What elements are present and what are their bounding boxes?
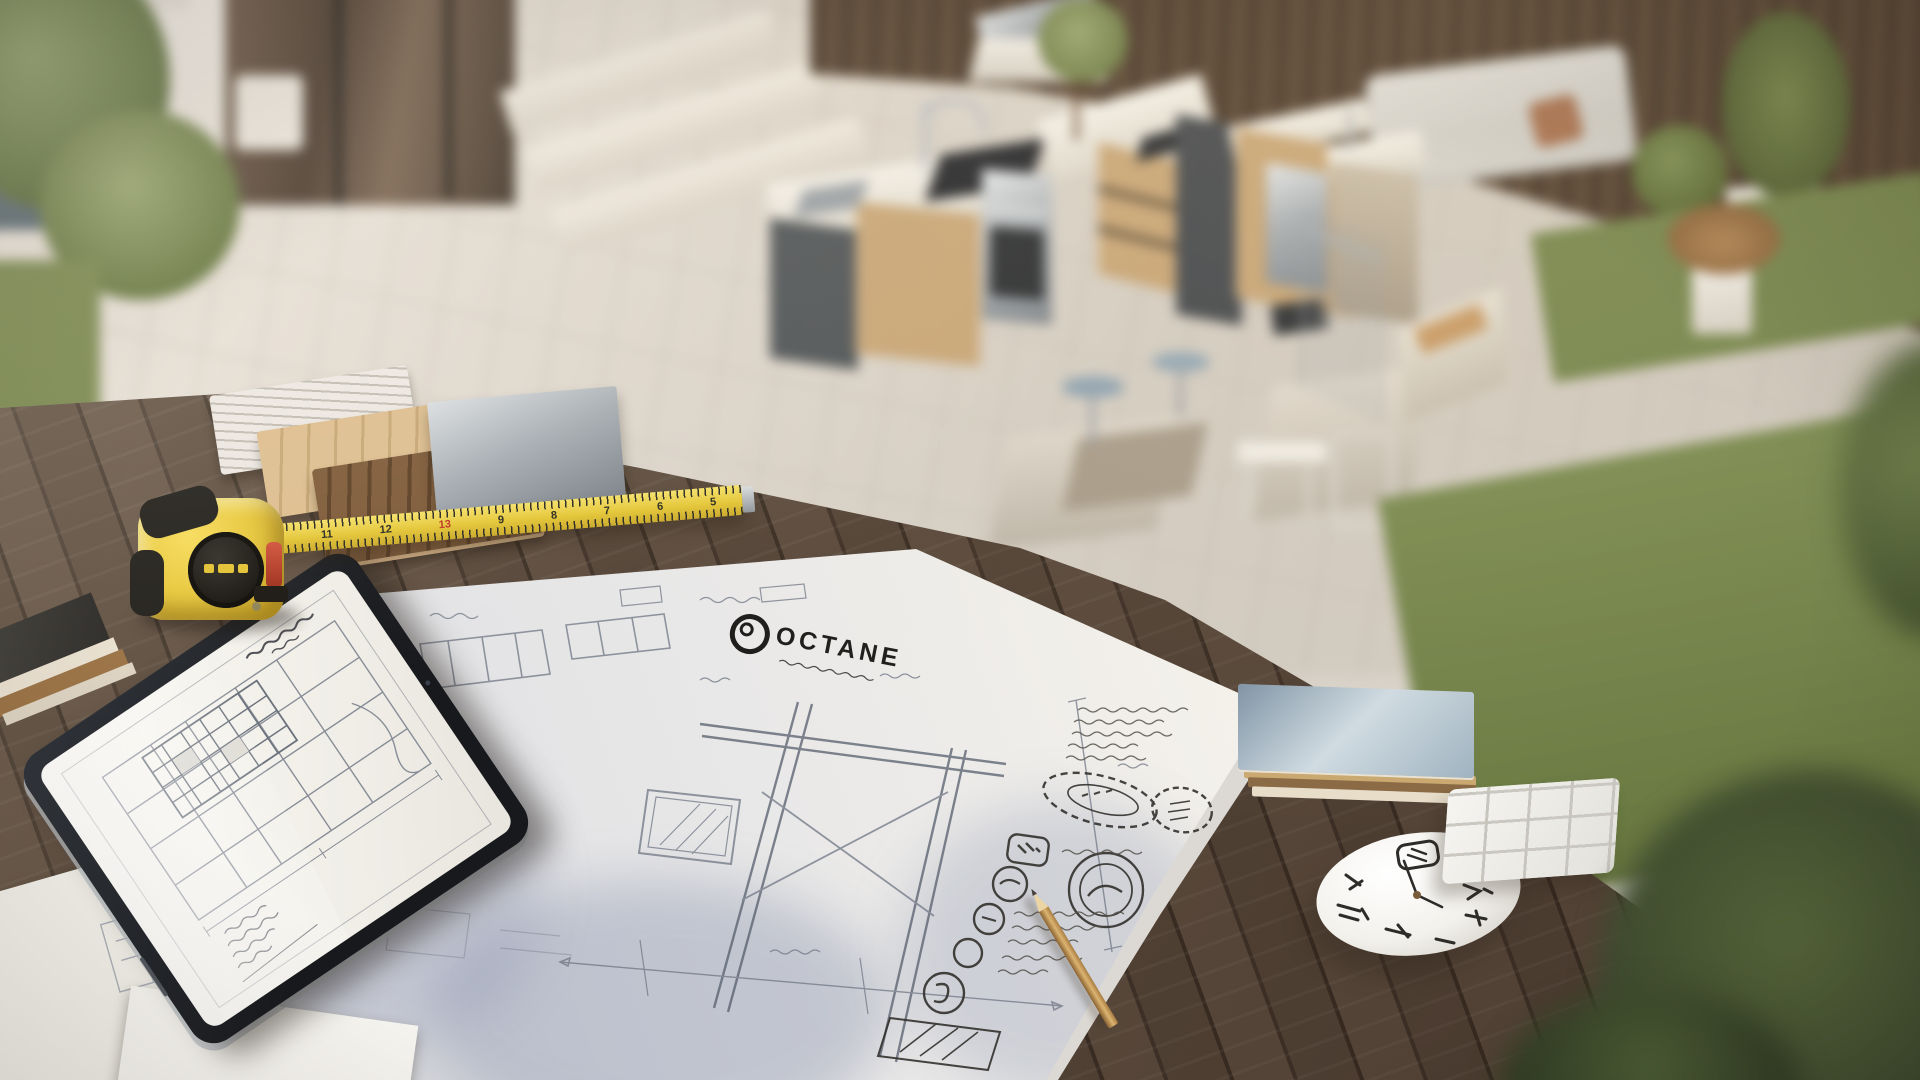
tape-number: 5 [710,496,717,508]
tree-foliage [1038,0,1128,82]
island-right-faucet [1348,108,1352,150]
tape-number: 9 [497,514,504,526]
tablet-camera-dot [424,679,431,686]
kitchen-drawers-right [1098,142,1180,294]
kitchen-cabinet-left [856,201,980,366]
tape-number: 13 [438,518,451,531]
high-table-legs [1246,460,1316,518]
oven-window [990,226,1044,301]
tape-rubber-bumper-left [130,550,164,616]
tape-number: 12 [379,523,392,536]
grid-tile-sample [1442,778,1620,885]
scene: OCTANE [0,0,1920,1080]
tape-screw [252,602,261,611]
planter-plant [1722,12,1850,198]
grass-left [0,260,100,420]
tape-number: 11 [321,528,334,541]
tape-number: 6 [657,500,664,512]
glass-door-frame [445,0,452,198]
tape-end-hook [741,486,755,513]
mirror-sample-top [1238,684,1474,778]
dried-plant [1668,204,1780,274]
bar-stool-stem [1090,394,1095,446]
tape-blade-slot [254,586,288,602]
grid-tile-grid [1442,778,1620,885]
tape-number: 7 [604,505,611,517]
tape-number: 8 [551,509,558,521]
kitchen-end-panel [770,218,858,370]
bar-stool-stem [1178,368,1183,416]
railing [1302,209,1386,423]
shrub-ball [1632,125,1728,217]
mirror-sample-stack [1238,684,1478,808]
interior-bench [235,75,303,150]
tape-brand-badge [188,532,264,608]
glass-door-frame [335,0,342,205]
high-table [1238,442,1326,462]
kitchen-faucet-arc [922,98,986,134]
tape-measure-body [138,498,288,628]
tape-red-lock-tab [266,542,282,588]
